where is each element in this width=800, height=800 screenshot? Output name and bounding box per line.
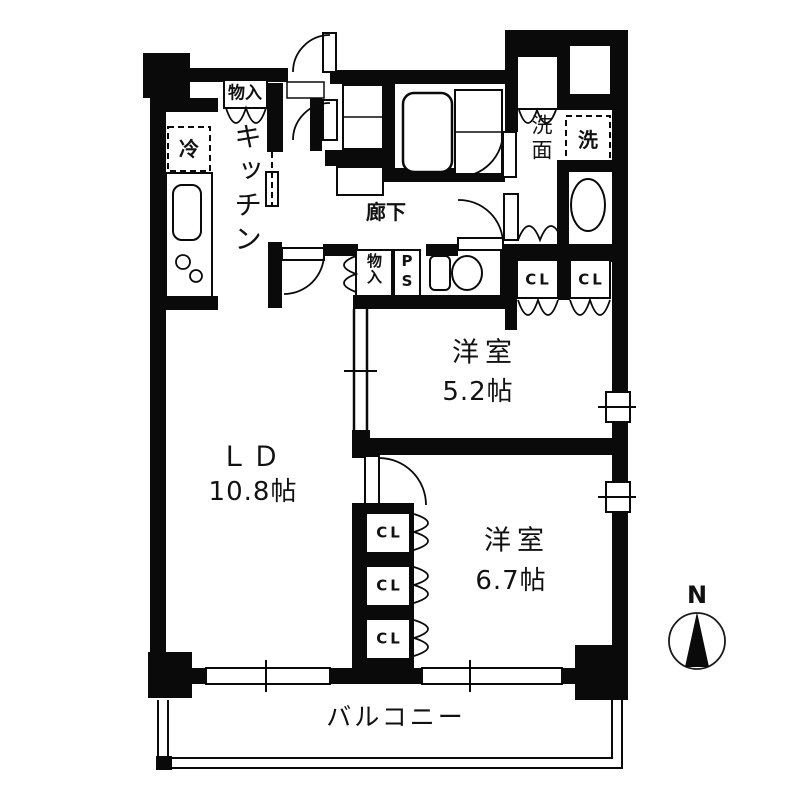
ld-door-leaf	[282, 248, 324, 260]
wall-kitchen-bottom-stub	[166, 296, 218, 310]
wall-top-b	[330, 70, 510, 84]
wall-corridor-south-a	[323, 244, 358, 256]
room2-door-leaf	[365, 456, 379, 504]
label-ld-size: 10.8帖	[209, 479, 298, 505]
label-closet-upper-1: CL	[522, 273, 552, 288]
compass	[669, 612, 725, 669]
wall-corridor-west-stub	[268, 242, 282, 308]
label-room2-size: 6.7帖	[475, 568, 546, 594]
wall-bottom-3	[562, 668, 575, 684]
label-room1-name: 洋室	[446, 340, 518, 367]
label-compass-north: N	[687, 583, 707, 607]
toilet-tank	[430, 256, 450, 290]
room2-door-arc	[379, 458, 426, 505]
kitchen-sink	[173, 185, 201, 240]
label-kitchen: キッチン	[232, 122, 260, 258]
wall-hall-left	[267, 83, 283, 152]
label-ld-name: ＬＤ	[220, 443, 284, 471]
balcony-railing-foot	[156, 756, 172, 770]
storage-hall-fold-door-arc	[344, 256, 356, 292]
stove-burner-1	[176, 255, 190, 269]
wall-pillar-bottom-right	[575, 645, 628, 700]
label-washroom: 洗面	[530, 114, 551, 164]
wall-right-middle	[612, 422, 628, 482]
wall-closet-mid	[558, 262, 570, 300]
ld-partition	[344, 309, 377, 432]
wall-storage-row-bottom	[353, 295, 517, 309]
wall-kitchen-top-stub	[166, 98, 218, 112]
label-closet-upper-2: CL	[575, 273, 605, 288]
storage-top-fold-door-arc	[226, 108, 266, 123]
label-room2-name: 洋室	[478, 528, 550, 555]
label-storage-top: 物入	[228, 86, 262, 103]
meter-box-recess	[570, 46, 610, 94]
label-room1-size: 5.2帖	[442, 379, 513, 405]
washroom-fold-door-arc	[518, 226, 562, 240]
label-storage-hall: 物入	[366, 253, 381, 285]
wall-toilet-top	[426, 244, 458, 256]
label-washer: 洗	[578, 130, 598, 150]
wall-right-upper	[612, 110, 628, 394]
wall-pillar-bottom-left	[148, 652, 192, 698]
closet-lower-2-fold-arc	[414, 567, 428, 603]
closet-lower-3-fold-arc	[414, 620, 428, 656]
label-refrigerator: 冷	[179, 139, 199, 159]
label-pipe-space: PS	[399, 252, 414, 292]
wall-left	[150, 98, 166, 654]
wall-bath-left	[383, 77, 395, 182]
label-closet-lower-3: CL	[373, 632, 403, 647]
floor-plan: 物入 冷 キッチン 廊下 物入 PS 洗面 洗 CL CL CL CL CL 洋…	[0, 0, 800, 800]
toilet-bowl	[452, 256, 482, 290]
label-balcony: バルコニー	[326, 705, 466, 730]
wall-room-divider	[352, 438, 614, 455]
wall-toilet-right	[500, 244, 514, 302]
wash-basin	[571, 179, 605, 231]
wall-pillar-top-left	[143, 53, 190, 98]
label-closet-lower-1: CL	[373, 526, 403, 541]
washroom-door-leaf	[504, 194, 518, 240]
closet-lower-1-fold-arc	[414, 514, 428, 550]
entrance-door-leaf	[323, 33, 336, 72]
bathtub	[403, 93, 452, 172]
label-closet-lower-2: CL	[373, 579, 403, 594]
hall-cabinet	[337, 167, 383, 195]
label-corridor: 廊下	[366, 202, 406, 222]
hall-door-leaf	[323, 100, 337, 140]
floor-plan-drawing	[0, 0, 800, 800]
closet-upper-1-fold-arc	[518, 300, 558, 315]
stove-burner-2	[190, 270, 202, 282]
wall-bottom-1	[192, 668, 206, 684]
bath-door-leaf	[503, 132, 516, 177]
closet-upper-2-fold-arc	[570, 300, 610, 315]
window-south-ld	[206, 668, 330, 684]
toilet-door-leaf	[458, 238, 503, 250]
wall-bath-wash-divider	[505, 82, 518, 132]
compass-needle	[685, 612, 709, 667]
upper-cabinet-cell	[518, 57, 557, 108]
entrance-step	[287, 82, 324, 98]
window-south-room2	[422, 668, 562, 684]
wall-right-lower	[612, 512, 628, 647]
